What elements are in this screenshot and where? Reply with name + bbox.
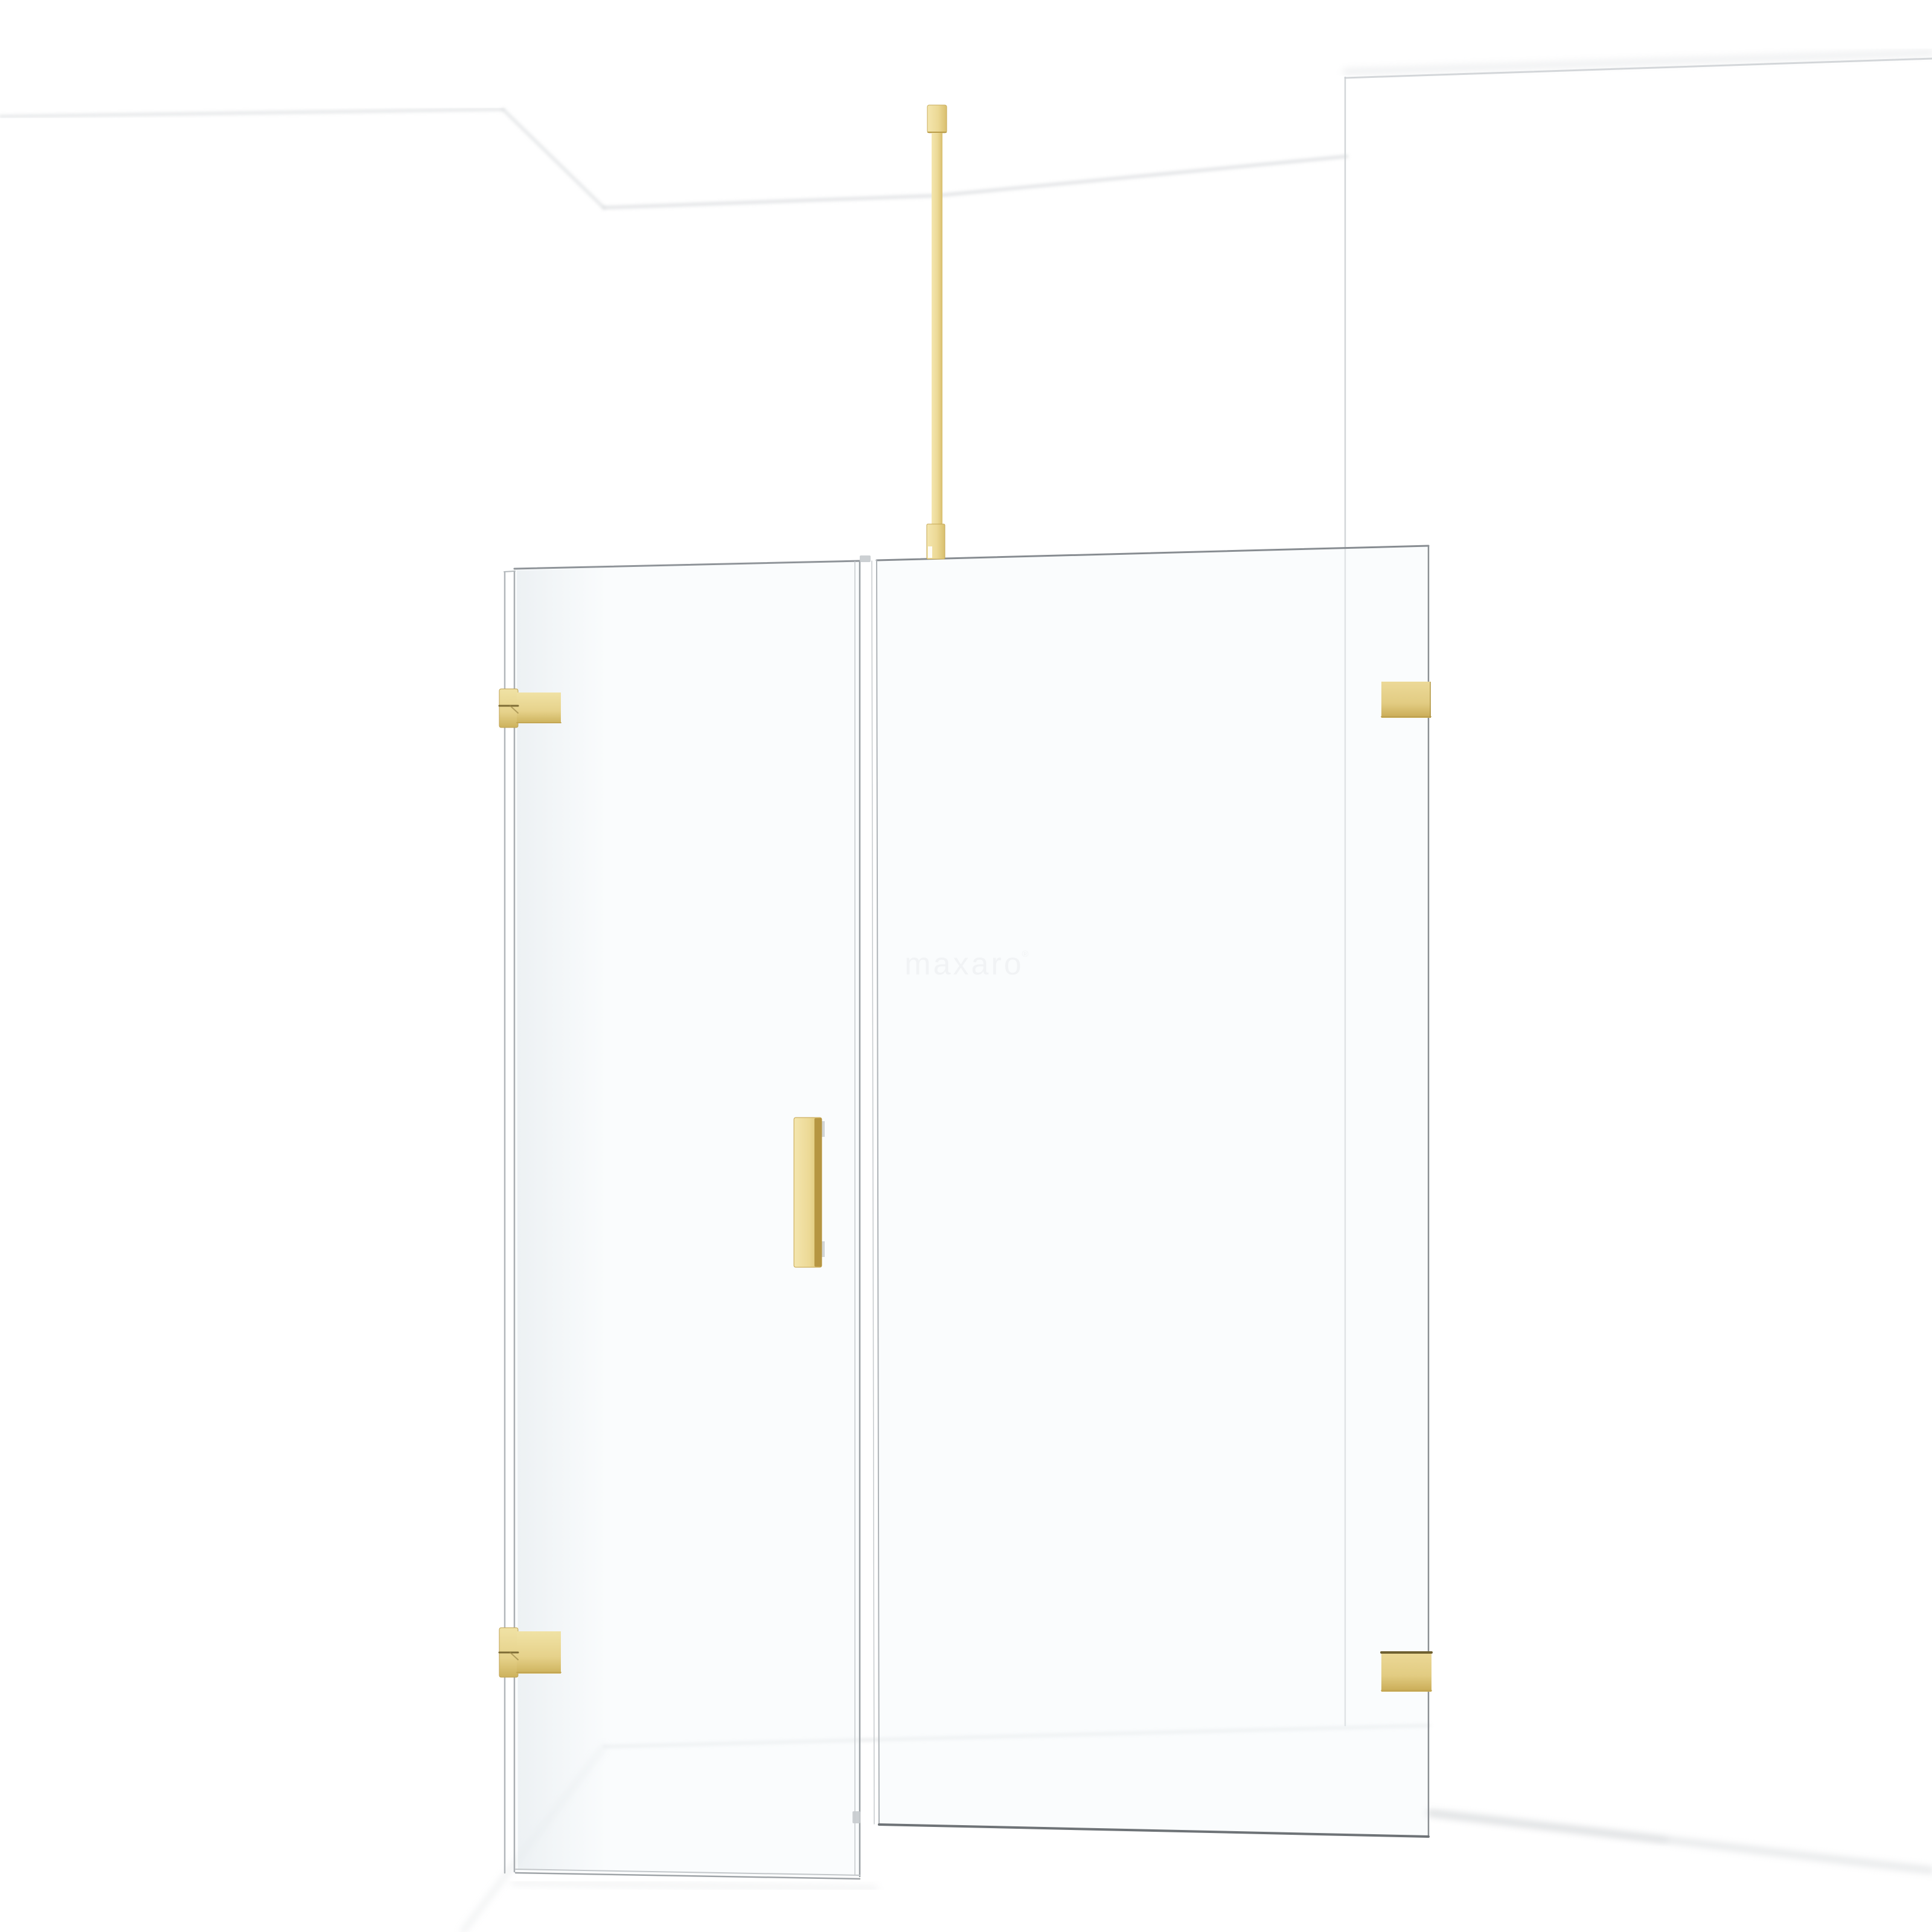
- door-glass-reflection: [517, 569, 607, 1869]
- panel-gap-cap-top: [860, 555, 871, 562]
- wall-bracket-top-body: [1381, 682, 1431, 718]
- door-hinge-top: [499, 689, 561, 728]
- panel-gap-cap-bottom: [852, 1811, 860, 1823]
- door-handle: [794, 1118, 825, 1267]
- support-bar-ceiling-cap: [927, 105, 947, 133]
- door-hinge-bottom: [499, 1628, 561, 1677]
- support-bar-clamp-slot: [928, 546, 932, 558]
- hinge-bottom-plate: [517, 1631, 561, 1674]
- hinge-top-knuckle: [499, 689, 518, 728]
- glass-fixed-panel: [852, 546, 1428, 1837]
- wall-bracket-bottom: [1381, 1651, 1431, 1692]
- support-bar-rod: [932, 133, 942, 525]
- door-left-profile-cap: [504, 571, 515, 572]
- panel-glass-pane: [877, 546, 1428, 1837]
- handle-bar-dark-edge: [814, 1118, 822, 1267]
- wall-bracket-bottom-body: [1381, 1651, 1431, 1692]
- hinge-top-plate: [517, 693, 561, 723]
- product-render: maxaro ®: [0, 0, 1932, 1932]
- wall-bracket-top: [1381, 682, 1431, 718]
